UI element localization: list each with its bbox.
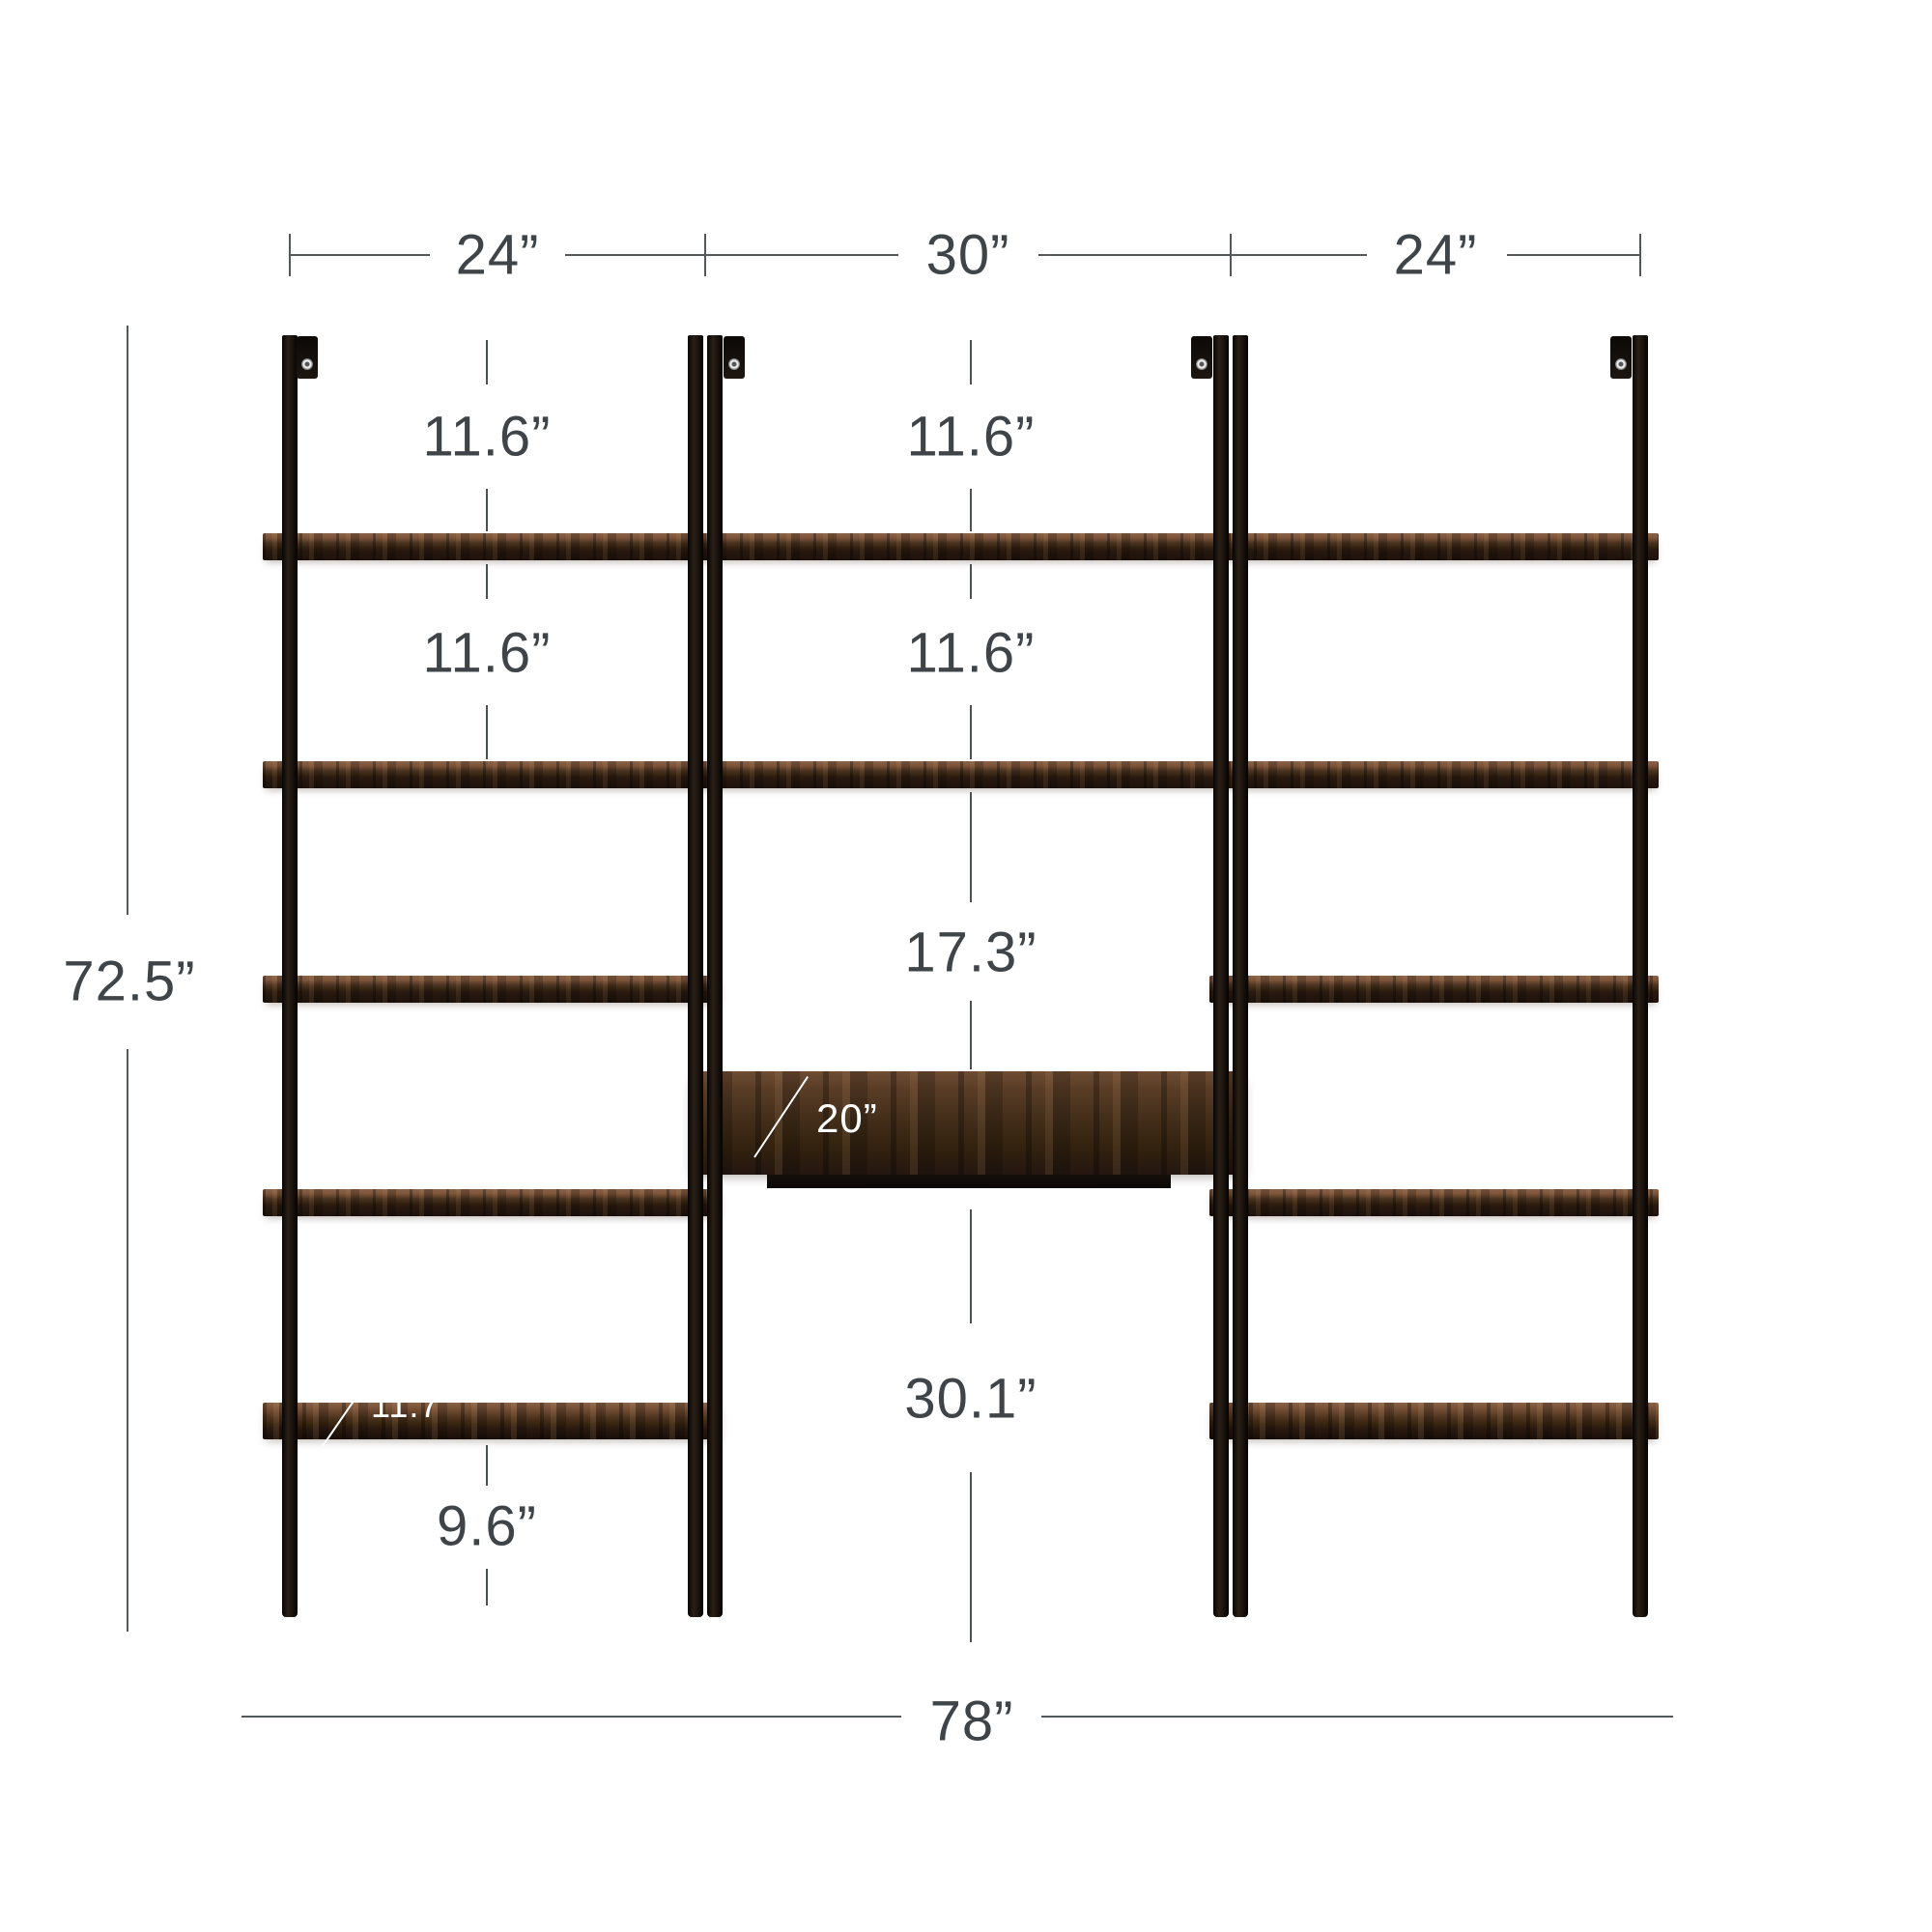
left-shelf-row3 [263, 976, 723, 1003]
dim-label-desk-clearance: 17.3” [904, 921, 1037, 985]
shelf-row2-seam-right [1229, 761, 1231, 788]
width-dim-line [1041, 1716, 1673, 1718]
top-dim-line [565, 254, 898, 256]
leader-line [486, 564, 488, 599]
callout-desk-depth: 20” [816, 1095, 878, 1142]
desk-under-rail [767, 1175, 1171, 1188]
leader-line [970, 705, 972, 759]
top-dim-line [290, 254, 430, 256]
height-dim-line [127, 1049, 128, 1632]
dim-label-overall-width: 78” [930, 1690, 1014, 1754]
leader-line [970, 1472, 972, 1642]
leader-line [970, 340, 972, 384]
top-dim-line [1038, 254, 1367, 256]
width-dim-line [241, 1716, 901, 1718]
right-shelf-row5 [1209, 1403, 1659, 1439]
post-right-outer [1633, 335, 1648, 1617]
dim-label-bottom-gap: 9.6” [437, 1494, 537, 1559]
dim-label-left-gap-2: 11.6” [423, 621, 552, 686]
post-right-inner [1233, 335, 1248, 1617]
right-shelf-row3 [1209, 976, 1659, 1003]
bracket-screw-icon [728, 358, 740, 370]
leader-line [970, 792, 972, 902]
leader-line [970, 564, 972, 599]
leader-line [486, 489, 488, 531]
bracket-screw-icon [1615, 358, 1627, 370]
dim-label-width-middle-unit: 30” [926, 223, 1010, 288]
bracket-screw-icon [301, 358, 313, 370]
leader-line [486, 1445, 488, 1486]
shelf-row2 [263, 761, 1659, 788]
dim-label-width-left-unit: 24” [456, 223, 540, 288]
dim-label-middle-gap-2: 11.6” [907, 621, 1036, 686]
dim-label-left-gap-1: 11.6” [423, 405, 552, 469]
bracket-screw-icon [1196, 358, 1207, 370]
dim-label-overall-height: 72.5” [63, 950, 195, 1014]
leader-line [970, 489, 972, 531]
height-dim-line [127, 326, 128, 915]
leader-line [486, 705, 488, 759]
shelf-row1 [263, 533, 1659, 560]
shelf-row1-seam-right [1229, 533, 1231, 560]
leader-line [486, 340, 488, 384]
wall-bracket-4 [1610, 336, 1632, 379]
wall-bracket-3 [1191, 336, 1212, 379]
post-left-inner [688, 335, 703, 1617]
leader-line [970, 1209, 972, 1323]
callout-shelf-depth: 11.7” [371, 1385, 452, 1426]
leader-line [970, 1001, 972, 1069]
dim-label-width-right-unit: 24” [1394, 223, 1478, 288]
dim-label-middle-gap-1: 11.6” [907, 405, 1036, 469]
top-dim-line [1507, 254, 1640, 256]
post-left-outer [282, 335, 298, 1617]
post-middle-right [1213, 335, 1229, 1617]
dim-label-below-desk: 30.1” [904, 1367, 1037, 1432]
shelf-dimension-diagram: 24” 30” 24” 72.5” 78” 11.6” 11.6” 9.6” 1… [0, 0, 1932, 1932]
wall-bracket-2 [724, 336, 745, 379]
right-shelf-row4 [1209, 1189, 1659, 1216]
leader-line [486, 1569, 488, 1605]
left-shelf-row4 [263, 1189, 723, 1216]
post-middle-left [707, 335, 723, 1617]
wall-bracket-1 [297, 336, 318, 379]
desk-top [688, 1071, 1248, 1175]
